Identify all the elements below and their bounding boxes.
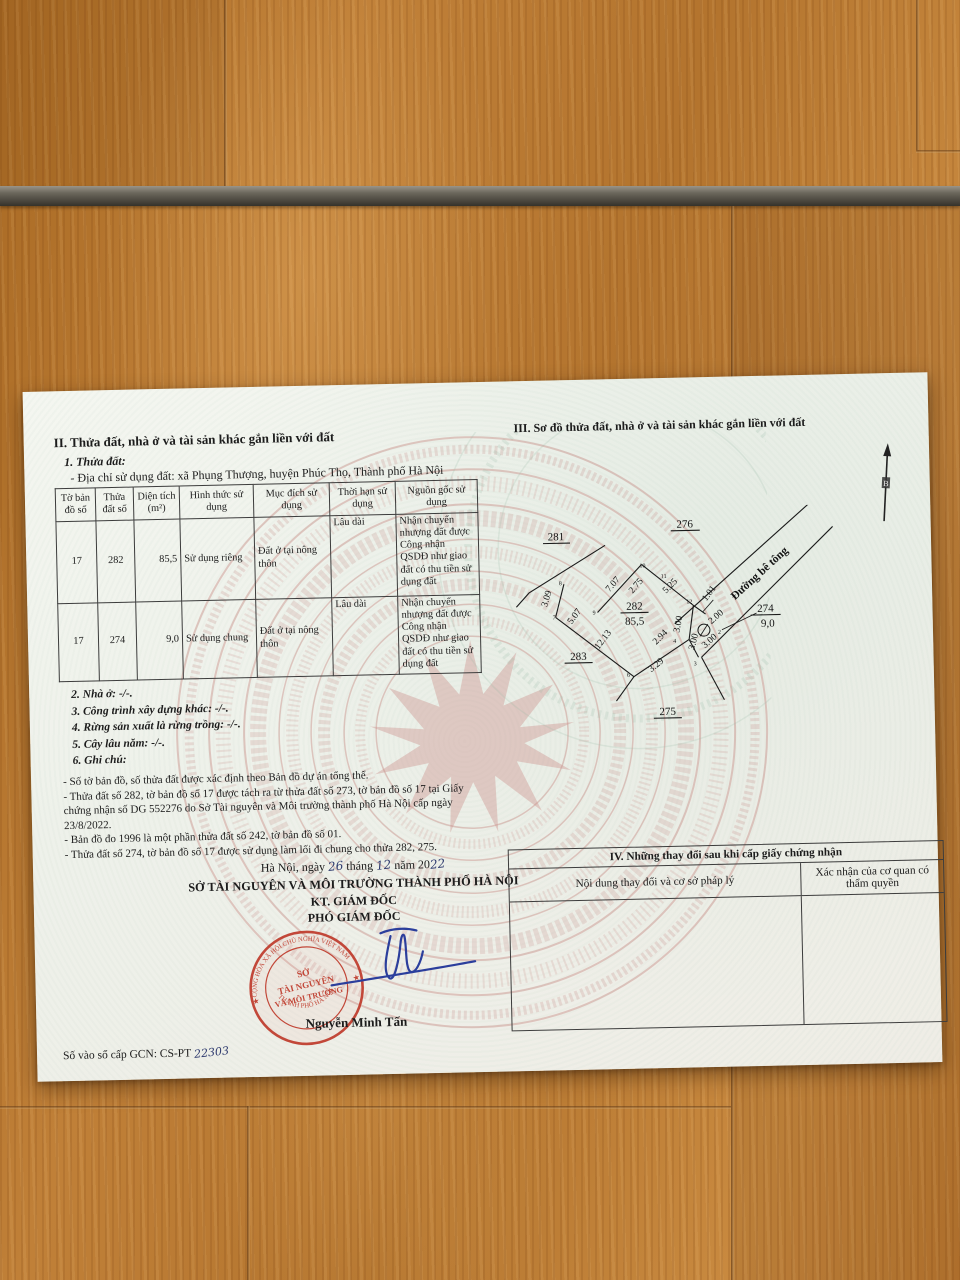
north-label: B bbox=[883, 479, 889, 488]
cell-purpose: Đất ở tại nông thôn bbox=[254, 516, 332, 600]
date-place: Hà Nội, ngày bbox=[261, 859, 326, 874]
cell-area: 9,0 bbox=[136, 601, 184, 680]
vertex-tick: 10 bbox=[639, 563, 645, 569]
cell-origin: Nhận chuyển nhượng đất được Công nhận QS… bbox=[396, 513, 480, 597]
section2-sub1-title: 1. Thửa đất: bbox=[64, 454, 126, 470]
vertex-tick: 9 bbox=[592, 611, 595, 617]
cell-sheet: 17 bbox=[58, 603, 100, 682]
vertex-tick: 4 bbox=[673, 639, 676, 645]
tile-grout-line bbox=[0, 186, 960, 206]
parcel-label-276: 276 bbox=[676, 518, 693, 530]
measure: 2.75 bbox=[627, 577, 646, 596]
section2-title: II. Thửa đất, nhà ở và tài sản khác gắn … bbox=[54, 429, 335, 451]
measure: 7.07 bbox=[604, 575, 623, 594]
section3-title: III. Sơ đồ thửa đất, nhà ở và tài sản kh… bbox=[513, 415, 805, 436]
cell-term: Lâu dài bbox=[330, 514, 398, 597]
vertex-tick: 8 bbox=[559, 581, 562, 587]
cadastral-diagram: 281 276 282 85,5 283 275 274 9,0 7.07 2.… bbox=[512, 504, 837, 739]
col-header-origin: Nguồn gốc sử dụng bbox=[395, 480, 478, 515]
item-notes-label: 6. Ghi chú: bbox=[72, 749, 241, 769]
section4-col2-header: Xác nhận của cơ quan có thẩm quyền bbox=[801, 860, 944, 895]
cell-purpose: Đất ở tại nông thôn bbox=[256, 598, 334, 678]
col-header-sheet: Tờ bản đồ số bbox=[55, 488, 96, 522]
measure: 2.00 bbox=[707, 608, 726, 627]
measure: 2.94 bbox=[651, 628, 670, 647]
col-header-purpose: Mục đích sử dụng bbox=[253, 483, 330, 518]
plank-seam bbox=[247, 1106, 250, 1280]
col-header-area: Diện tích (m²) bbox=[133, 486, 180, 520]
vertex-tick: 6 bbox=[627, 673, 630, 679]
deputy-signature bbox=[302, 917, 514, 1014]
handwritten-registry-number: 22303 bbox=[193, 1044, 229, 1061]
cell-term: Lâu dài bbox=[332, 596, 400, 675]
col-header-form: Hình thức sử dụng bbox=[179, 484, 254, 519]
handwritten-day: 26 bbox=[327, 858, 344, 874]
parcel-label-281: 281 bbox=[548, 531, 565, 543]
vertex-tick: 7 bbox=[553, 615, 556, 621]
plank-seam bbox=[0, 1106, 731, 1109]
photo-of-land-certificate: II. Thửa đất, nhà ở và tài sản khác gắn … bbox=[0, 0, 960, 1280]
vertex-tick: 12 bbox=[686, 599, 692, 605]
cell-parcel: 274 bbox=[98, 602, 138, 681]
measure: 3.00 bbox=[700, 632, 719, 651]
measure: 5.07 bbox=[566, 607, 584, 627]
parcel-label-282: 282 bbox=[626, 600, 643, 612]
section2-items: 2. Nhà ở: -/-. 3. Công trình xây dựng kh… bbox=[71, 683, 242, 769]
plank-seam bbox=[224, 0, 227, 188]
parcel-table: Tờ bản đồ số Thửa đất số Diện tích (m²) … bbox=[55, 479, 482, 682]
parcel-label-275: 275 bbox=[659, 706, 676, 718]
section4-table: IV. Những thay đổi sau khi cấp giấy chứn… bbox=[508, 840, 948, 1031]
parcel-row-282: 17 282 85,5 Sử dụng riêng Đất ở tại nông… bbox=[56, 513, 480, 604]
date-year-label: năm 20 bbox=[394, 857, 430, 872]
registry-label: Số vào sổ cấp GCN: CS-PT bbox=[63, 1047, 191, 1062]
section4-col1-header: Nội dung thay đổi và cơ sở pháp lý bbox=[509, 863, 802, 901]
certificate-page: II. Thửa đất, nhà ở và tài sản khác gắn … bbox=[23, 372, 943, 1082]
plank-seam bbox=[916, 0, 919, 150]
vertex-tick: 11 bbox=[661, 574, 667, 580]
north-arrow: B bbox=[871, 443, 901, 528]
cell-parcel: 282 bbox=[96, 520, 136, 603]
cell-origin: Nhận chuyển nhượng đất được Công nhận QS… bbox=[398, 595, 482, 675]
date-month-label: tháng bbox=[346, 858, 373, 873]
col-header-parcel: Thửa đất số bbox=[95, 487, 134, 521]
col-header-term: Thời hạn sử dụng bbox=[329, 481, 396, 515]
registry-number-line: Số vào sổ cấp GCN: CS-PT 22303 bbox=[63, 1046, 229, 1063]
measure: 3.09 bbox=[540, 589, 554, 608]
section4-col1-cell bbox=[510, 896, 805, 1030]
parcel-area-282: 85,5 bbox=[625, 615, 645, 627]
parcel-area-274: 9,0 bbox=[761, 618, 776, 630]
parcel-label-283: 283 bbox=[570, 651, 587, 663]
plank-seam bbox=[916, 150, 960, 153]
handwritten-year: 22 bbox=[429, 856, 446, 872]
measure: 12.13 bbox=[593, 628, 614, 651]
section2-notes: - Số tờ bản đồ, số thửa đất được xác địn… bbox=[63, 766, 493, 863]
cell-area: 85,5 bbox=[134, 519, 182, 602]
plank-shade bbox=[0, 0, 224, 186]
vertex-tick: 2 bbox=[718, 630, 721, 636]
handwritten-month: 12 bbox=[375, 857, 392, 873]
measure: 3.29 bbox=[647, 656, 666, 674]
section4-empty-row bbox=[510, 893, 947, 1030]
parcel-label-274: 274 bbox=[757, 603, 774, 615]
parcel-row-274: 17 274 9,0 Sử dụng chung Đất ở tại nông … bbox=[58, 595, 482, 682]
vertex-tick: 3 bbox=[694, 661, 697, 667]
cell-form: Sử dụng chung bbox=[182, 599, 258, 679]
section4-col2-cell bbox=[802, 893, 947, 1024]
road-name-label: Đường bê tông bbox=[729, 545, 791, 603]
measure: 3.00 bbox=[672, 615, 685, 633]
cell-form: Sử dụng riêng bbox=[180, 517, 256, 601]
cell-sheet: 17 bbox=[56, 521, 98, 604]
